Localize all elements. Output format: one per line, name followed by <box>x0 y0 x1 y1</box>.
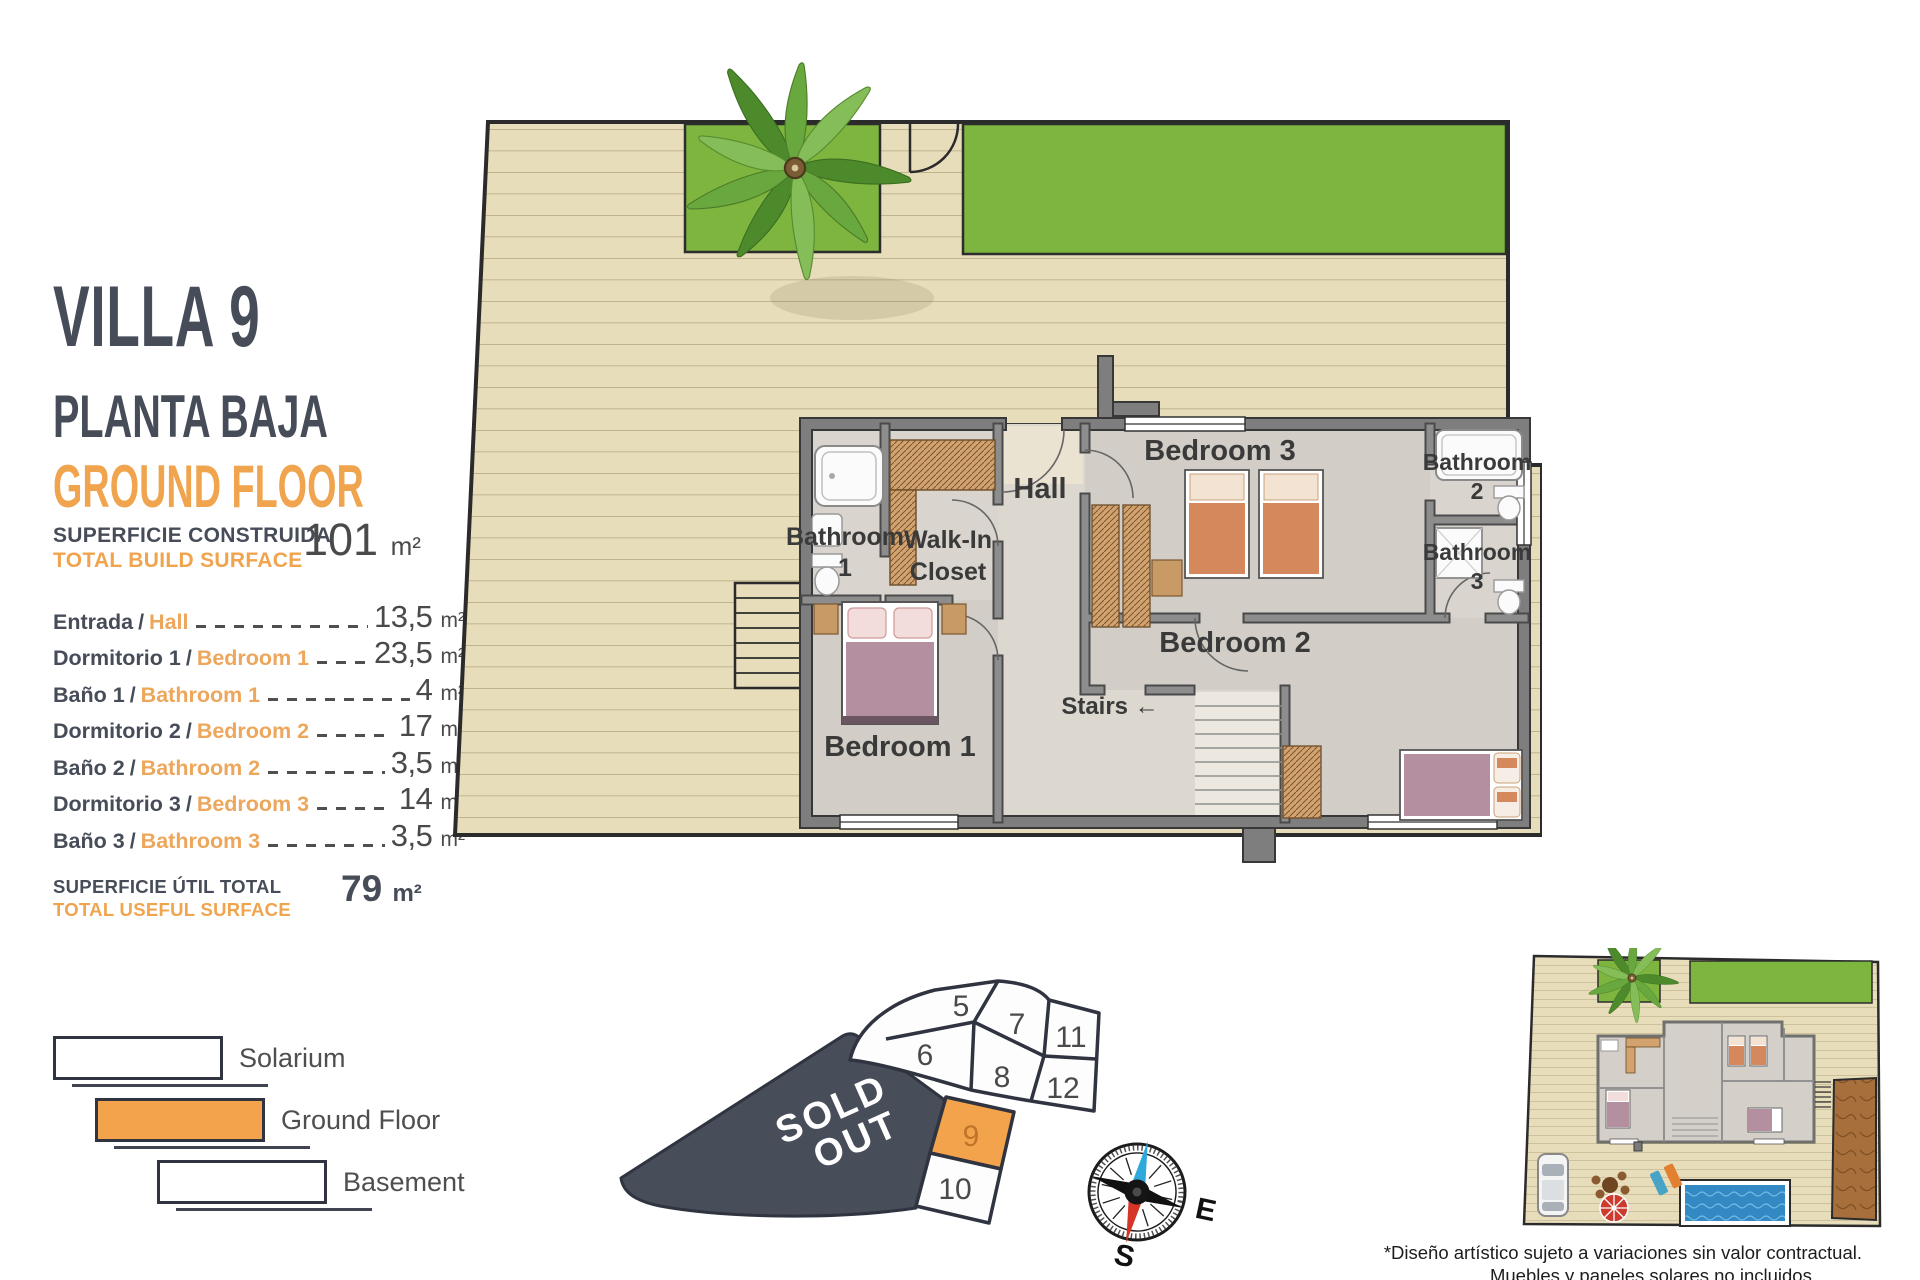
disclaimer-line2: Muebles y paneles solares no incluidos. <box>1300 1264 1817 1280</box>
site-overview-thumbnail <box>1522 948 1912 1238</box>
separator: / <box>186 646 192 671</box>
disclaimer: *Diseño artístico sujeto a variaciones s… <box>1300 1241 1862 1280</box>
room-row-bathroom3: Baño 3/Bathroom 3 3,5 m² <box>53 817 465 854</box>
build-surface-label-es: SUPERFICIE CONSTRUIDA <box>53 524 331 549</box>
plot-number-10: 10 <box>938 1173 971 1206</box>
room-label-es: Dormitorio 1 <box>53 646 181 671</box>
wall-stub-bottom <box>1243 828 1275 862</box>
legend-swatch-solarium <box>53 1036 223 1080</box>
room-label-es: Dormitorio 3 <box>53 792 181 817</box>
plot-number-8: 8 <box>994 1061 1011 1094</box>
room-label-es: Dormitorio 2 <box>53 719 181 744</box>
room-label-en: Bathroom 2 <box>141 756 260 781</box>
legend-label: Solarium <box>239 1043 346 1074</box>
plot-number-6: 6 <box>917 1039 934 1072</box>
separator: / <box>130 683 136 708</box>
room-row-bathroom2: Baño 2/Bathroom 2 3,5 m² <box>53 744 465 781</box>
dashed-leader <box>268 844 385 847</box>
mini-lawn-right <box>1690 961 1872 1003</box>
bedroom2-closet <box>1283 746 1321 818</box>
bedroom3-label: Bedroom 3 <box>1144 435 1295 467</box>
mini-umbrella <box>1600 1194 1628 1222</box>
room-label-en: Bedroom 2 <box>197 719 309 744</box>
compass-rose: E S <box>1078 1125 1278 1280</box>
room-label-en: Hall <box>149 610 188 635</box>
legend-item-ground-floor: Ground Floor <box>95 1098 440 1142</box>
plot-number-11: 11 <box>1055 1021 1086 1054</box>
useful-surface-value: 79 m² <box>341 868 422 910</box>
bathroom1-label-line1: Bathroom <box>786 523 904 551</box>
room-row-bedroom2: Dormitorio 2/Bedroom 2 17 m² <box>53 708 465 745</box>
hall-label: Hall <box>1013 473 1066 505</box>
plot-number-12: 12 <box>1046 1072 1079 1105</box>
stairs-floor <box>1195 692 1283 822</box>
separator: / <box>186 719 192 744</box>
walk-in-closet-label-line2: Closet <box>910 558 987 586</box>
useful-surface-labels: SUPERFICIE ÚTIL TOTAL TOTAL USEFUL SURFA… <box>53 876 291 921</box>
room-row-bathroom1: Baño 1/Bathroom 1 4 m² <box>53 671 465 708</box>
room-label-en: Bedroom 3 <box>197 792 309 817</box>
subtitle-spanish: PLANTA BAJA <box>53 382 470 451</box>
room-row-bedroom1: Dormitorio 1/Bedroom 1 23,5 m² <box>53 635 465 672</box>
plot-number-9: 9 <box>963 1120 980 1153</box>
room-row-hall: Entrada/Hall 13,5 m² <box>53 598 465 635</box>
separator: / <box>186 792 192 817</box>
room-label-es: Baño 2 <box>53 756 125 781</box>
mini-house <box>1598 1022 1831 1151</box>
dashed-leader <box>268 698 409 701</box>
compass-east-label: E <box>1193 1192 1219 1228</box>
left-exterior-steps <box>735 583 801 688</box>
dashed-leader <box>317 661 368 664</box>
floor-plan-sheet: VILLA 9 PLANTA BAJA GROUND FLOOR SUPERFI… <box>0 0 1920 1280</box>
room-measurements-list: Entrada/Hall 13,5 m² Dormitorio 1/Bedroo… <box>53 598 465 854</box>
mini-dirt-area <box>1832 1078 1876 1220</box>
useful-surface-label-es: SUPERFICIE ÚTIL TOTAL <box>53 876 291 899</box>
plot-number-5: 5 <box>953 990 970 1023</box>
dashed-leader <box>196 625 368 628</box>
house <box>800 356 1531 862</box>
room-label-es: Entrada <box>53 610 133 635</box>
legend-swatch-basement <box>157 1160 327 1204</box>
main-floor-plan: Hall Bathroom 1 Walk-In Closet Bedroom 3… <box>450 40 1542 870</box>
bedroom2-bed <box>1400 750 1522 820</box>
stairs-label: Stairs ← <box>1061 693 1158 720</box>
separator: / <box>138 610 144 635</box>
bedroom1-label: Bedroom 1 <box>824 731 975 763</box>
bathroom3-label-line1: Bathroom <box>1423 539 1532 565</box>
disclaimer-line1: *Diseño artístico sujeto a variaciones s… <box>1300 1241 1862 1264</box>
palm-shadow <box>770 276 934 320</box>
dashed-leader <box>317 807 393 810</box>
separator: / <box>130 756 136 781</box>
legend-label: Basement <box>343 1167 465 1198</box>
lawn-top-right <box>963 124 1506 254</box>
useful-surface-label-en: TOTAL USEFUL SURFACE <box>53 899 291 922</box>
room-label-es: Baño 1 <box>53 683 125 708</box>
build-surface-label-en: TOTAL BUILD SURFACE <box>53 549 331 574</box>
room-label-en: Bathroom 1 <box>141 683 260 708</box>
legend-item-solarium: Solarium <box>53 1036 346 1080</box>
bedroom2-label: Bedroom 2 <box>1159 627 1310 659</box>
legend-item-basement: Basement <box>157 1160 465 1204</box>
separator: / <box>130 829 136 854</box>
legend-swatch-ground-floor <box>95 1098 265 1142</box>
room-label-es: Baño 3 <box>53 829 125 854</box>
build-surface-labels: SUPERFICIE CONSTRUIDA TOTAL BUILD SURFAC… <box>53 524 331 574</box>
mini-car <box>1538 1154 1568 1216</box>
dashed-leader <box>268 771 385 774</box>
bathroom2-label-line1: Bathroom <box>1423 449 1532 475</box>
room-label-en: Bedroom 1 <box>197 646 309 671</box>
plot-number-7: 7 <box>1009 1008 1026 1041</box>
compass-south-label: S <box>1111 1238 1137 1274</box>
bathroom3-label-line2: 3 <box>1471 568 1484 594</box>
walk-in-closet-label-line1: Walk-In <box>904 526 992 554</box>
bathroom2-label-line2: 2 <box>1471 478 1484 504</box>
page-title: VILLA 9 <box>53 268 377 367</box>
plot-location-map: SOLD OUT 5 6 7 8 9 10 11 12 <box>605 970 1115 1280</box>
bathroom1-label-line2: 1 <box>838 554 852 582</box>
dashed-leader <box>317 734 393 737</box>
mini-pool <box>1680 1180 1790 1226</box>
build-surface-value: 101 m² <box>303 514 421 566</box>
legend-label: Ground Floor <box>281 1105 440 1136</box>
room-label-en: Bathroom 3 <box>141 829 260 854</box>
room-row-bedroom3: Dormitorio 3/Bedroom 3 14 m² <box>53 781 465 818</box>
